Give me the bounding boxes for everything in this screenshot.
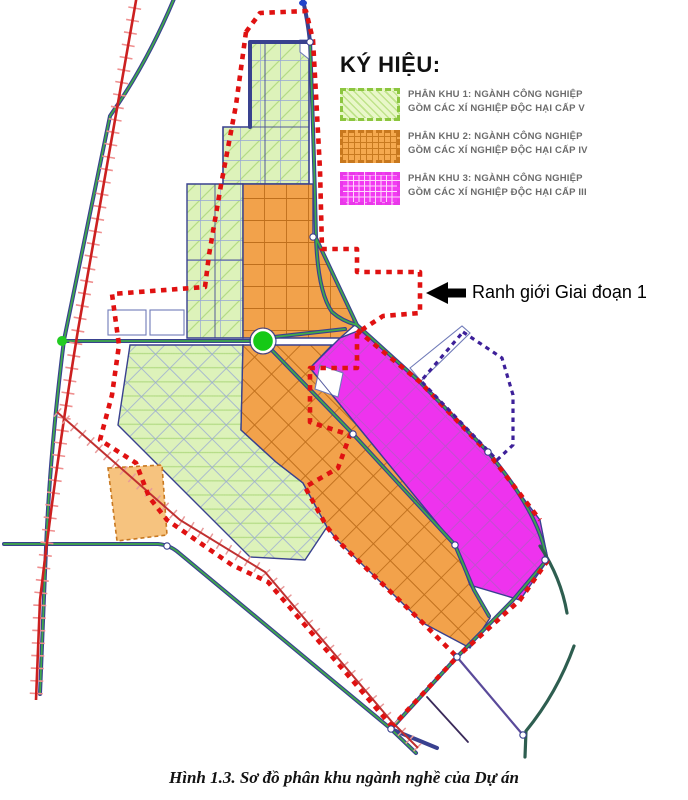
- small-orange-parcel: [108, 465, 167, 541]
- legend-item-zone3: PHÂN KHU 3: NGÀNH CÔNG NGHIỆP GỒM CÁC XÍ…: [340, 172, 650, 205]
- path-roads: [427, 657, 523, 742]
- annotation-arrow-icon: [426, 282, 466, 304]
- phase1-annotation-label: Ranh giới Giai đoạn 1: [472, 282, 647, 303]
- railway-main: [36, 0, 137, 700]
- zone2-swatch: [340, 130, 400, 163]
- top-road-dot: [299, 0, 307, 6]
- legend-item-zone2: PHÂN KHU 2: NGÀNH CÔNG NGHIỆP GỒM CÁC XÍ…: [340, 130, 650, 163]
- figure-caption: Hình 1.3. Sơ đồ phân khu ngành nghề của …: [0, 768, 688, 788]
- zone3-label: PHÂN KHU 3: NGÀNH CÔNG NGHIỆP GỒM CÁC XÍ…: [408, 172, 587, 200]
- zone3-swatch: [340, 172, 400, 205]
- legend-item-zone1: PHÂN KHU 1: NGÀNH CÔNG NGHIỆP GỒM CÁC XÍ…: [340, 88, 650, 121]
- legend: KÝ HIỆU: PHÂN KHU 1: NGÀNH CÔNG NGHIỆP G…: [340, 52, 650, 214]
- zone2-label: PHÂN KHU 2: NGÀNH CÔNG NGHIỆP GỒM CÁC XÍ…: [408, 130, 588, 158]
- zone1-swatch: [340, 88, 400, 121]
- junction-green-dot: [57, 336, 67, 346]
- figure-page: KÝ HIỆU: PHÂN KHU 1: NGÀNH CÔNG NGHIỆP G…: [0, 0, 688, 800]
- roundabout: [252, 330, 274, 352]
- legend-title: KÝ HIỆU:: [340, 52, 650, 78]
- zone1-label: PHÂN KHU 1: NGÀNH CÔNG NGHIỆP GỒM CÁC XÍ…: [408, 88, 585, 116]
